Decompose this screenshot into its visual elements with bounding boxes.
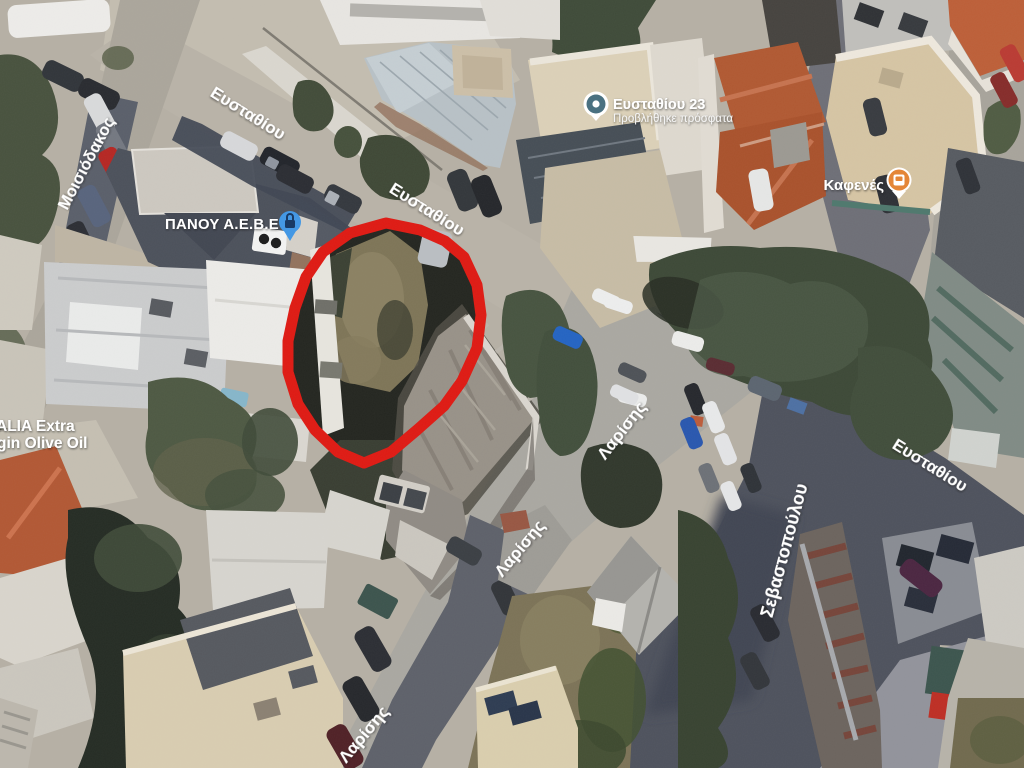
svg-text:Προβλήθηκε πρόσφατα: Προβλήθηκε πρόσφατα	[613, 113, 733, 125]
svg-text:Ευσταθίου 23: Ευσταθίου 23	[613, 97, 705, 113]
svg-text:Καφενές: Καφενές	[824, 177, 885, 194]
svg-text:ALIA Extra: ALIA Extra	[0, 418, 75, 435]
svg-text:rgin Olive Oil: rgin Olive Oil	[0, 435, 87, 452]
svg-text:ΠΑΝΟΥ Α.Ε.Β.Ε: ΠΑΝΟΥ Α.Ε.Β.Ε	[165, 217, 279, 233]
